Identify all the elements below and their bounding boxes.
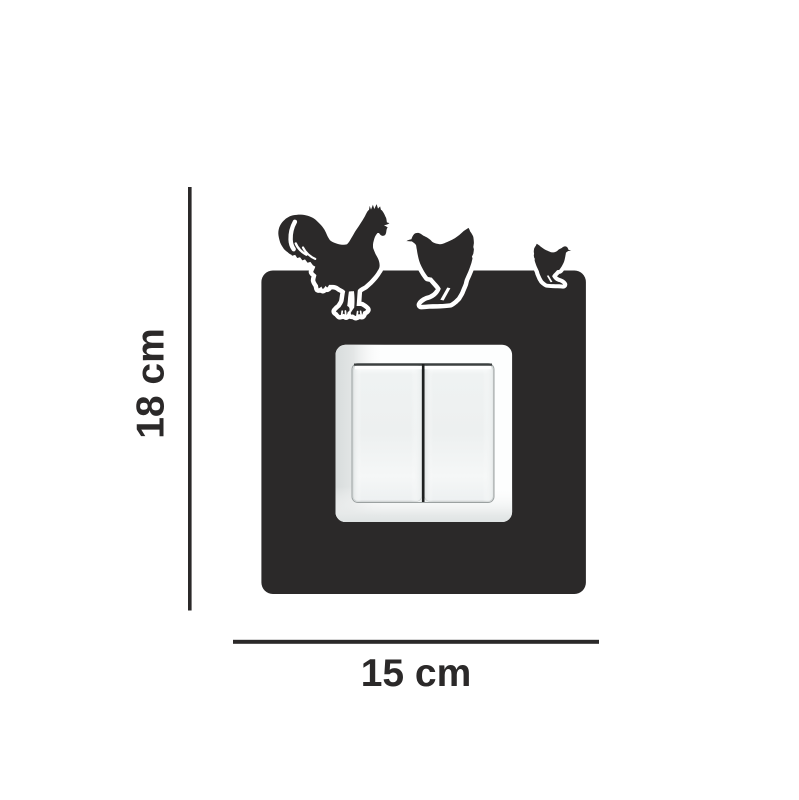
svg-text:18 cm: 18 cm bbox=[130, 328, 173, 439]
svg-text:15 cm: 15 cm bbox=[361, 652, 472, 695]
